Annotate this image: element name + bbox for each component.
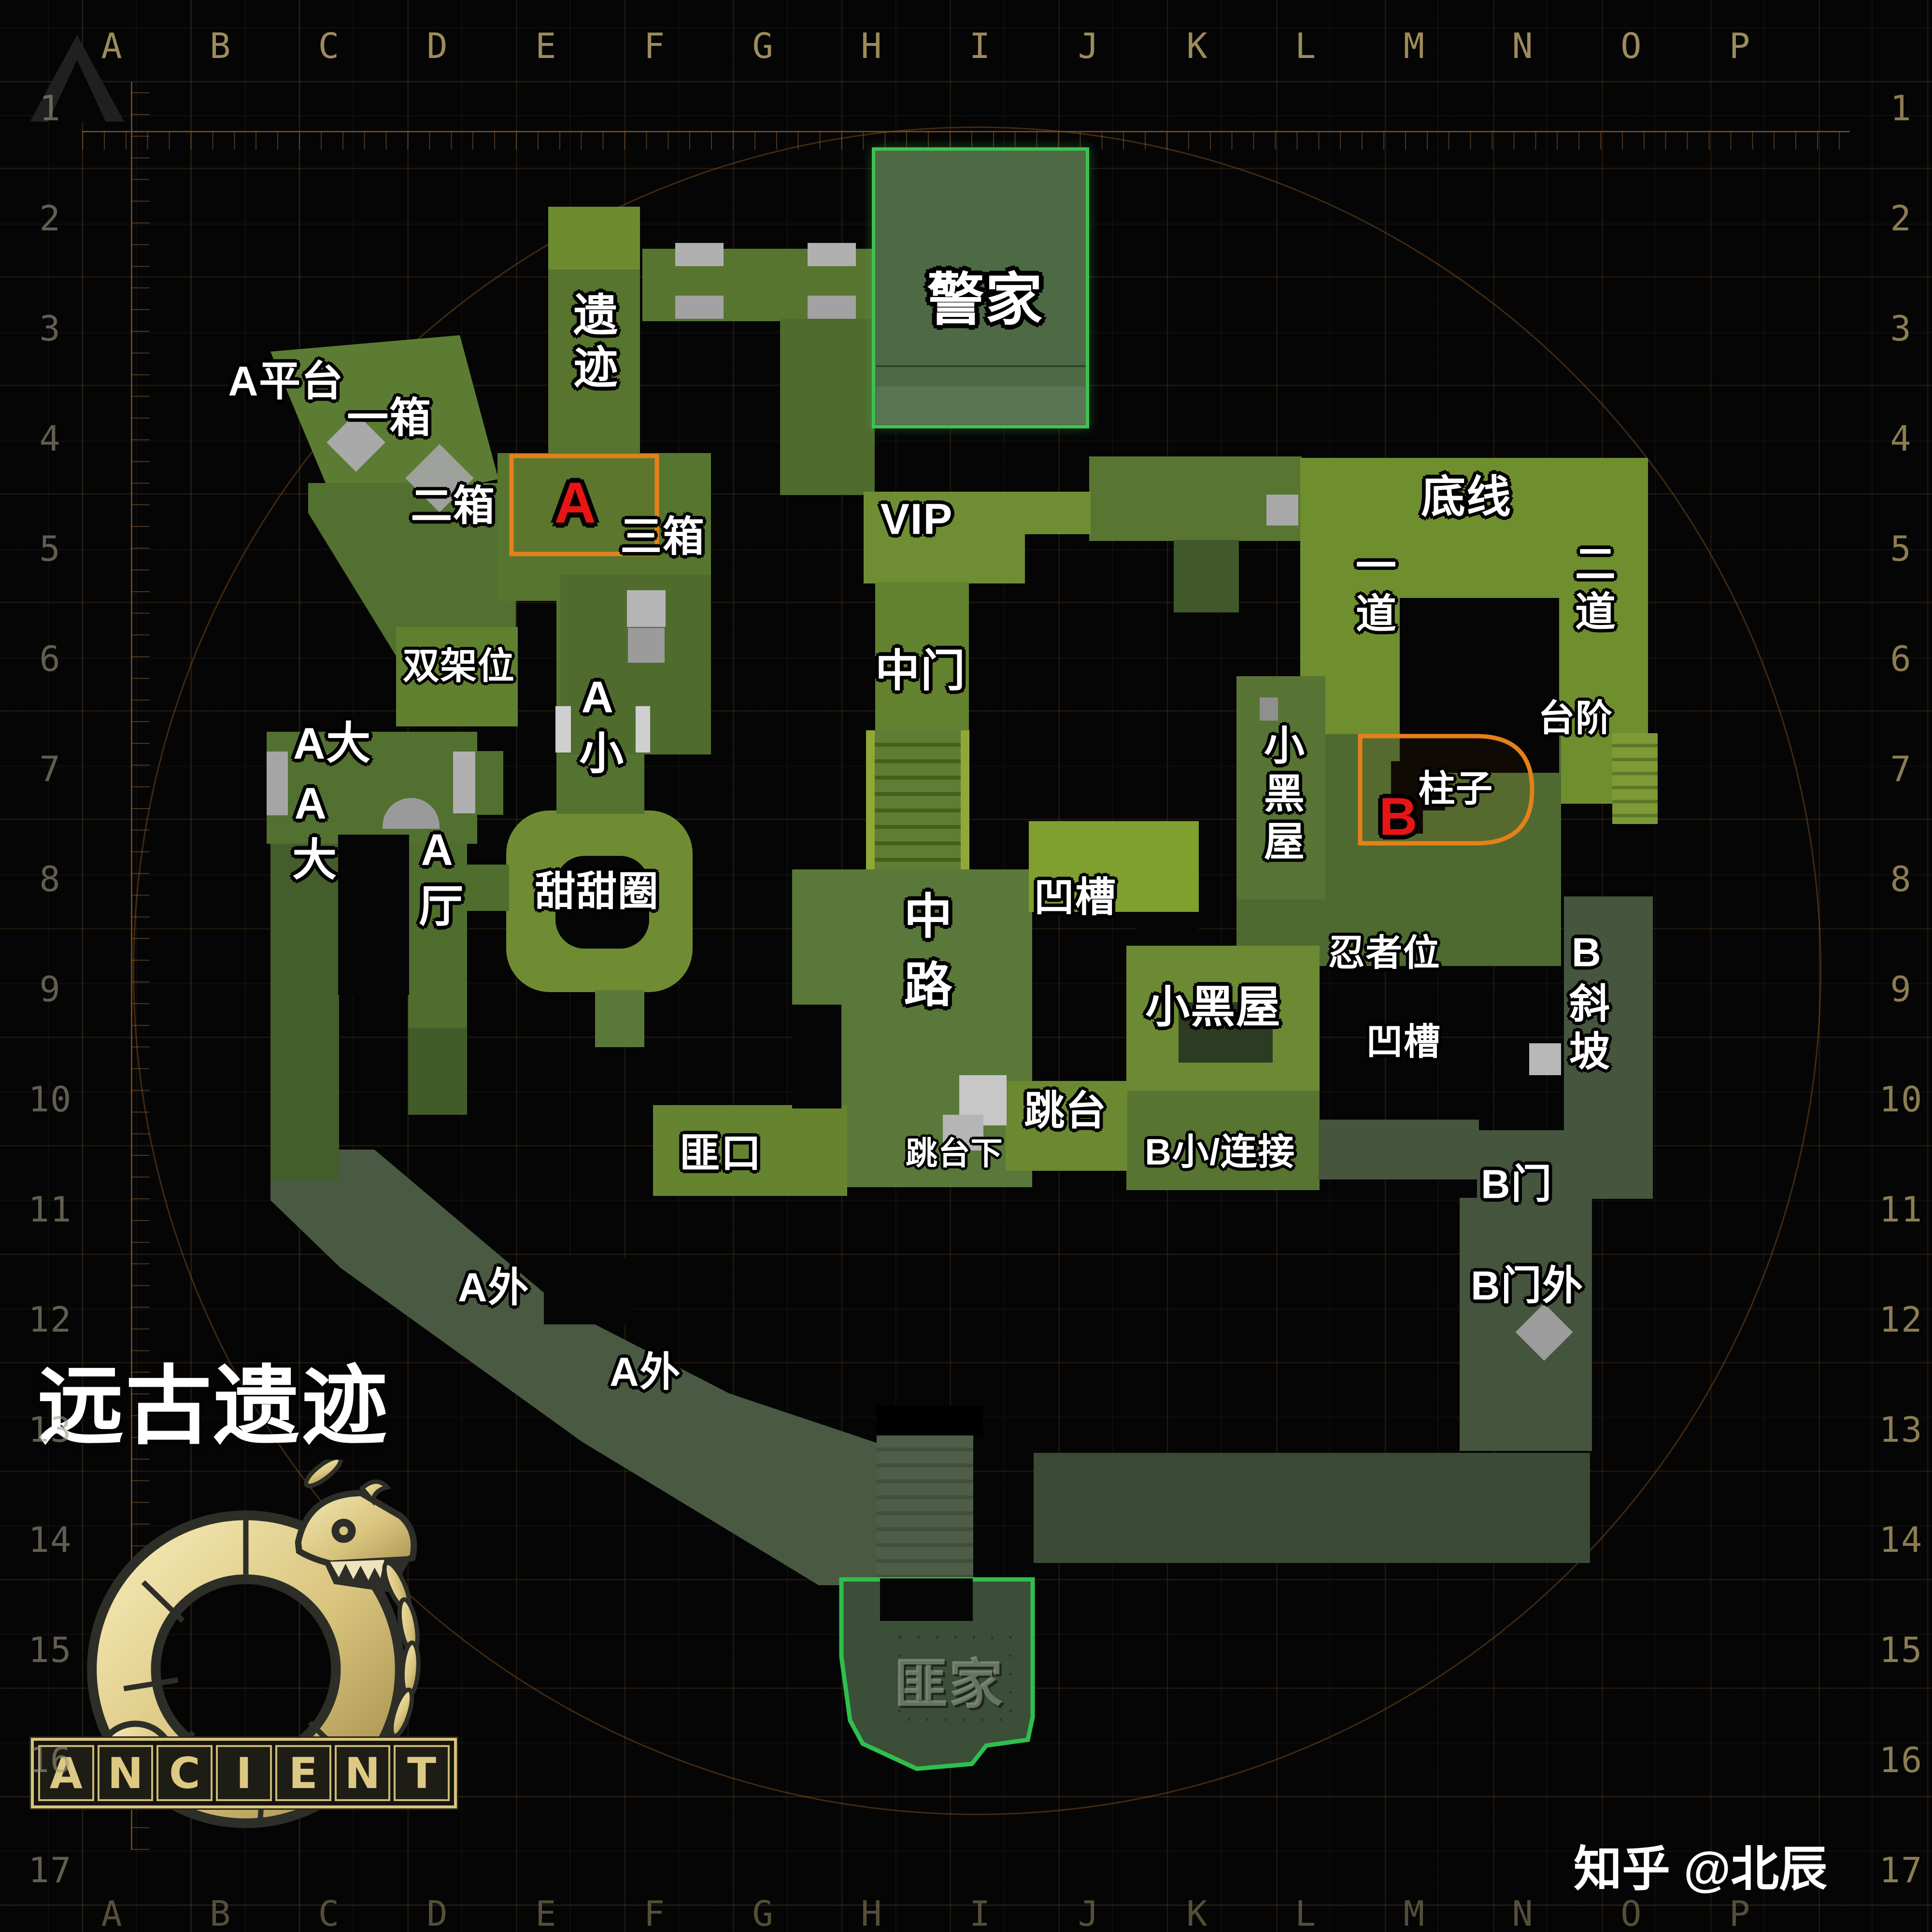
callout-13: A厅 (412, 825, 460, 935)
ruler-col-top-G: G (753, 26, 774, 66)
callout-4: 二箱 (411, 484, 495, 529)
ruler-row-right-14: 14 (1879, 1520, 1923, 1560)
ruler-row-right-11: 11 (1879, 1189, 1923, 1230)
ruler-row-right-6: 6 (1890, 639, 1912, 679)
callout-17: 小黑屋 (1145, 983, 1281, 1031)
banner-letter-1: N (98, 1745, 154, 1801)
callout-31: B斜坡 (1564, 929, 1608, 1078)
ancient-map-screenshot: 遗迹警家A平台一箱二箱A三箱VIP双架位中门A小A大A大A厅甜甜圈中路凹槽小黑屋… (0, 0, 1932, 1932)
ruler-col-top-B: B (210, 26, 231, 66)
ruler-col-bottom-L: L (1295, 1893, 1317, 1932)
callout-18: 跳台 (1024, 1089, 1107, 1133)
ruler-row-right-12: 12 (1879, 1299, 1923, 1340)
ruler-row-left-6: 6 (39, 639, 61, 679)
ruler-col-bottom-J: J (1078, 1893, 1100, 1932)
callout-12: A大 (286, 779, 334, 888)
ruler-col-bottom-A: A (101, 1893, 123, 1932)
ruler-row-left-4: 4 (39, 418, 61, 459)
ruler-row-left-17: 17 (28, 1850, 72, 1890)
ruler-col-top-D: D (426, 26, 448, 66)
callout-26: 柱子 (1418, 769, 1493, 809)
callout-11: A大 (293, 720, 371, 767)
callout-6: 三箱 (620, 515, 705, 560)
ruler-col-top-C: C (318, 26, 340, 66)
ruler-col-top-N: N (1512, 26, 1534, 66)
banner-letter-5: N (335, 1745, 391, 1801)
ruler-row-left-9: 9 (39, 969, 61, 1009)
ruler-col-bottom-O: O (1620, 1893, 1642, 1932)
ruler-row-left-12: 12 (28, 1299, 72, 1340)
callout-1: 警家 (927, 270, 1044, 331)
ruler-col-bottom-G: G (753, 1893, 774, 1932)
callout-20: B小/连接 (1145, 1133, 1295, 1172)
ruler-row-right-9: 9 (1890, 969, 1912, 1009)
ruler-col-top-P: P (1729, 26, 1751, 66)
ruler-row-left-13: 13 (28, 1409, 72, 1450)
ruler-row-left-7: 7 (39, 749, 61, 789)
ancient-banner: ANCIENT (31, 1738, 457, 1808)
ruler-col-bottom-H: H (861, 1893, 882, 1932)
ruler-row-left-1: 1 (39, 88, 61, 128)
ruler-col-bottom-F: F (644, 1893, 666, 1932)
ruler-col-bottom-D: D (426, 1893, 448, 1932)
ruler-row-right-17: 17 (1879, 1850, 1923, 1890)
callout-30: 凹槽 (1366, 1023, 1441, 1062)
watermark: 知乎 @北辰 (1574, 1830, 1827, 1900)
t-spawn-notch (880, 1578, 973, 1621)
callout-2: A平台 (228, 359, 343, 404)
ruler-col-top-O: O (1620, 26, 1642, 66)
callout-3: 一箱 (347, 396, 431, 441)
callout-23: 二道 (1570, 542, 1614, 638)
callout-21: 匪口 (679, 1132, 762, 1176)
ruler-col-bottom-B: B (210, 1893, 231, 1932)
ruler-row-left-3: 3 (39, 308, 61, 349)
ruler-col-top-A: A (101, 26, 123, 66)
callout-8: 双架位 (403, 647, 515, 686)
ruler-row-right-8: 8 (1890, 859, 1912, 899)
ruler-col-top-F: F (644, 26, 666, 66)
callout-34: A外 (458, 1266, 529, 1310)
ruler-col-top-I: I (969, 26, 991, 66)
banner-letter-4: E (275, 1745, 331, 1801)
ruler-row-right-10: 10 (1879, 1079, 1923, 1120)
ruler-col-top-H: H (861, 26, 882, 66)
callout-22: 一道 (1351, 544, 1395, 640)
ruler-row-right-5: 5 (1890, 528, 1912, 569)
ruler-row-right-3: 3 (1890, 308, 1912, 349)
callout-9: 中门 (875, 647, 966, 695)
ruler-col-top-L: L (1295, 26, 1317, 66)
callout-29: 忍者位 (1328, 934, 1441, 973)
callout-14: 甜甜圈 (535, 870, 659, 914)
callout-19: 跳台下 (906, 1136, 1003, 1170)
ruler-row-right-2: 2 (1890, 198, 1912, 239)
ruler-row-right-16: 16 (1879, 1740, 1923, 1780)
ruler-col-bottom-N: N (1512, 1893, 1534, 1932)
ruler-row-right-13: 13 (1879, 1409, 1923, 1450)
ruler-row-left-5: 5 (39, 528, 61, 569)
ruler-row-left-2: 2 (39, 198, 61, 239)
ruler-col-bottom-E: E (535, 1893, 557, 1932)
callout-24: 底线 (1421, 473, 1512, 521)
ruler-col-top-J: J (1078, 26, 1100, 66)
ruler-col-bottom-K: K (1186, 1893, 1208, 1932)
callout-5: A (554, 472, 597, 535)
ruler-row-left-15: 15 (28, 1630, 72, 1670)
callout-16: 凹槽 (1034, 876, 1116, 920)
ruler-row-left-8: 8 (39, 859, 61, 899)
callout-28: 小黑屋 (1259, 724, 1303, 867)
ruler-row-left-14: 14 (28, 1520, 72, 1560)
callout-36: 匪家 (894, 1656, 1004, 1714)
ruler-row-right-15: 15 (1879, 1630, 1923, 1670)
banner-letter-6: T (394, 1745, 450, 1801)
ruler-col-bottom-M: M (1404, 1893, 1425, 1932)
ruler-row-left-16: 16 (28, 1740, 72, 1780)
ruler-col-bottom-P: P (1729, 1893, 1751, 1932)
ruler-row-left-10: 10 (28, 1079, 72, 1120)
callout-15: 中路 (897, 891, 950, 1028)
ruler-row-right-1: 1 (1890, 88, 1912, 128)
callout-7: VIP (881, 496, 953, 543)
banner-letter-3: I (216, 1745, 272, 1801)
callout-25: 台阶 (1538, 699, 1613, 739)
callout-33: B门外 (1471, 1264, 1584, 1308)
callout-32: B门 (1481, 1163, 1552, 1207)
ruler-col-top-M: M (1404, 26, 1425, 66)
ruler-col-bottom-I: I (969, 1893, 991, 1932)
callout-27: B (1379, 789, 1419, 846)
ruler-row-left-11: 11 (28, 1189, 72, 1230)
callout-0: 遗迹 (567, 291, 615, 396)
ruler-col-bottom-C: C (318, 1893, 340, 1932)
ruler-col-top-E: E (535, 26, 557, 66)
banner-letter-2: C (156, 1745, 213, 1801)
callout-35: A外 (610, 1350, 681, 1394)
ruler-row-right-7: 7 (1890, 749, 1912, 789)
ruler-row-right-4: 4 (1890, 418, 1912, 459)
callout-10: A小 (573, 672, 621, 782)
map-title: 远古遗迹 (38, 1337, 389, 1461)
ruler-col-top-K: K (1186, 26, 1208, 66)
